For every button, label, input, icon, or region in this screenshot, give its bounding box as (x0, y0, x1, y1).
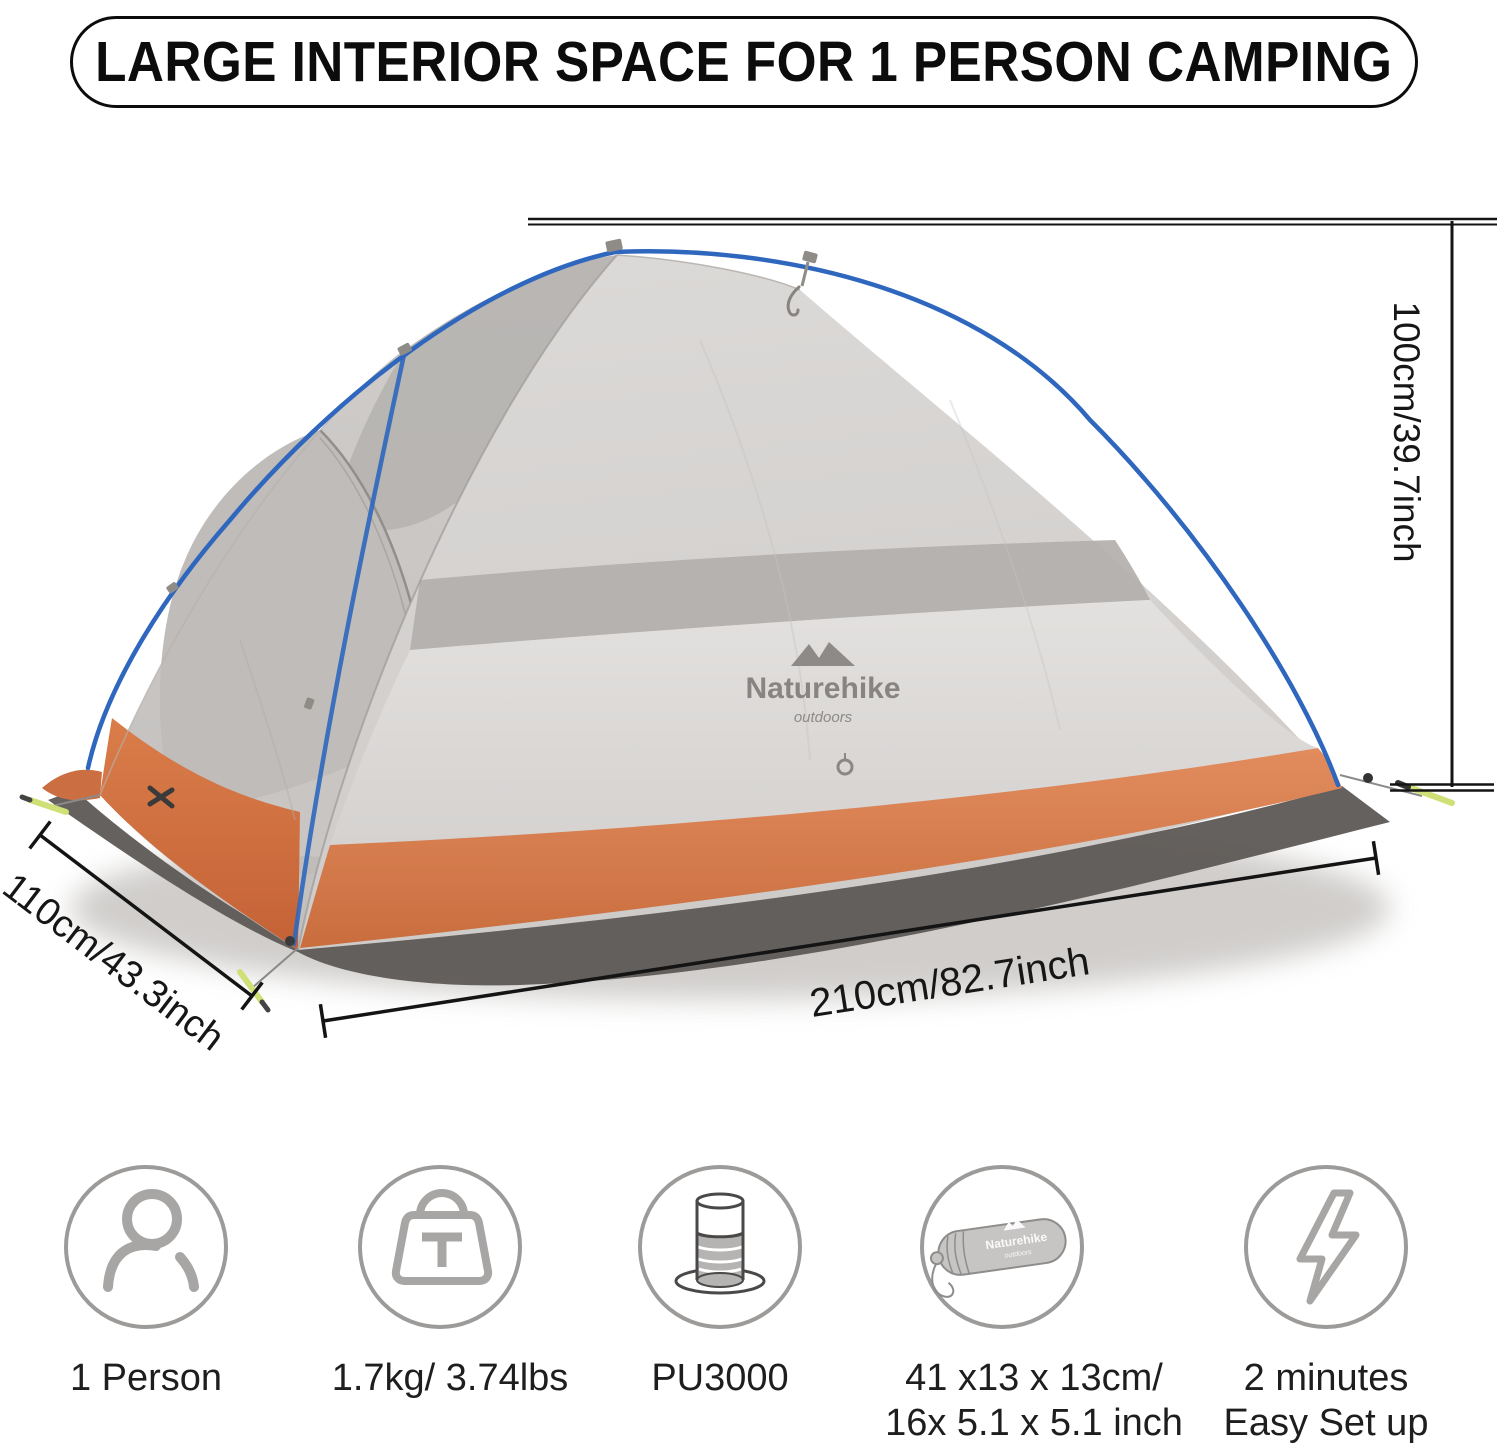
height-dimension-label: 100cm/39.7inch (1386, 301, 1427, 562)
feature-circle-waterproof (638, 1165, 802, 1329)
person-icon (68, 1169, 224, 1325)
feature-circle-weight (358, 1165, 522, 1329)
feature-circle-packed-size: Naturehike outdoors (920, 1165, 1084, 1329)
feature-label-line1: PU3000 (540, 1356, 900, 1401)
brand-sub: outdoors (794, 709, 853, 726)
feature-label-waterproof: PU3000 (540, 1356, 900, 1401)
feature-circle-setup (1244, 1165, 1408, 1329)
feature-label-line1: 2 minutes (1146, 1356, 1500, 1401)
front-stake-tip (262, 1002, 268, 1010)
left-stake-tip (22, 797, 30, 800)
weight-icon (362, 1169, 518, 1325)
brand-name: Naturehike (745, 672, 900, 705)
width-tick-start (30, 822, 51, 849)
tent-illustration: Naturehike outdoors (22, 238, 1452, 1010)
waterproof-rating-icon (642, 1169, 798, 1325)
feature-label-line2: Easy Set up (1146, 1401, 1500, 1445)
ridge-clip (802, 250, 818, 263)
right-corner-clamp (1363, 773, 1373, 783)
product-infographic: LARGE INTERIOR SPACE FOR 1 PERSON CAMPIN… (0, 0, 1500, 1445)
quick-setup-icon (1248, 1169, 1404, 1325)
packed-size-icon: Naturehike outdoors (924, 1169, 1080, 1325)
front-corner-clamp (285, 936, 295, 946)
feature-circle-capacity (64, 1165, 228, 1329)
feature-label-setup: 2 minutes Easy Set up (1146, 1356, 1500, 1445)
